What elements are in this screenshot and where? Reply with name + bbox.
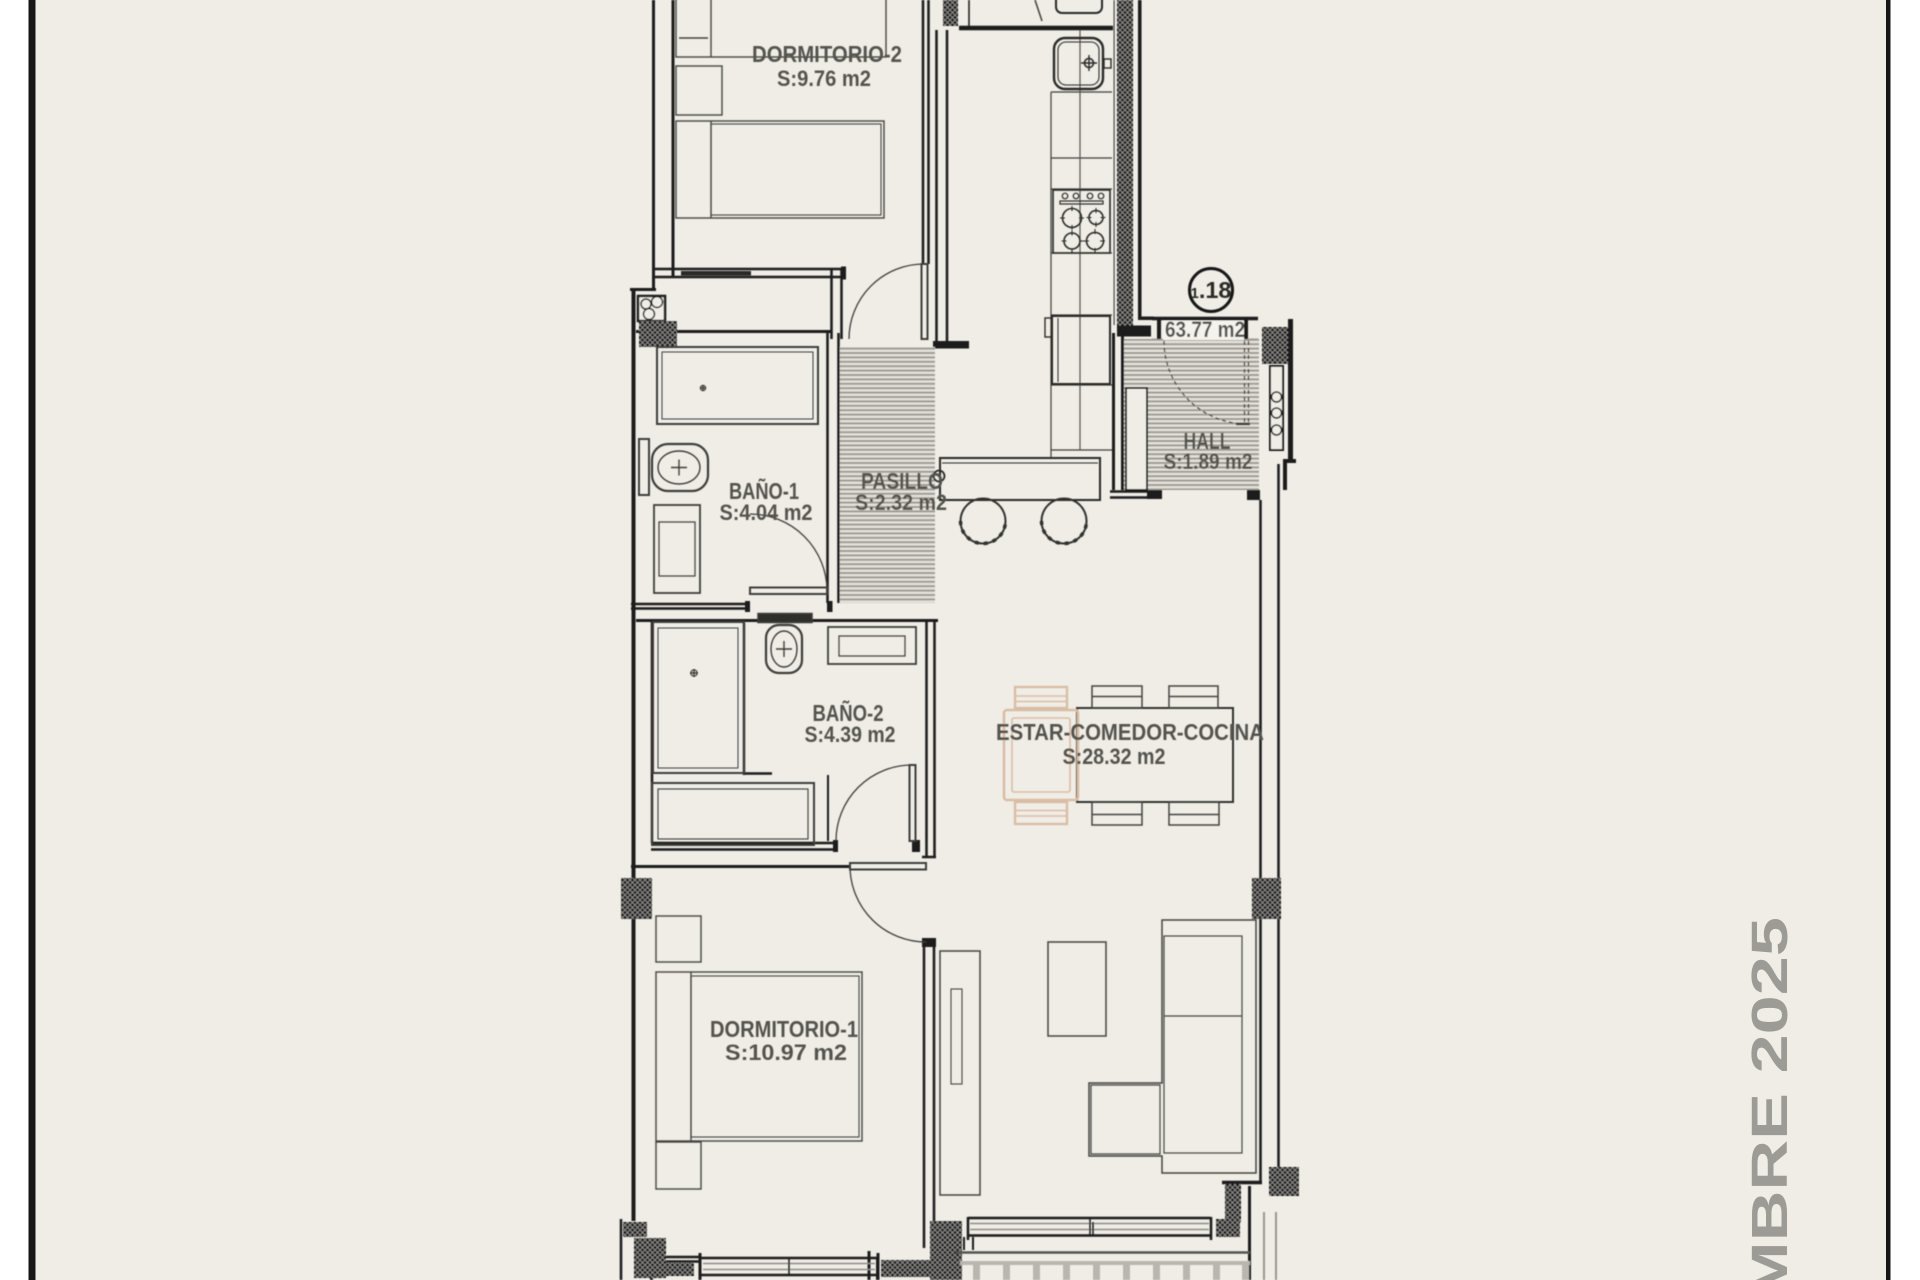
svg-text:ESTAR-COMEDOR-COCINA: ESTAR-COMEDOR-COCINA: [996, 719, 1264, 745]
svg-text:DORMITORIO-1: DORMITORIO-1: [710, 1016, 858, 1042]
svg-text:S:28.32 m2: S:28.32 m2: [1063, 744, 1166, 769]
svg-text:S:10.97 m2: S:10.97 m2: [725, 1040, 847, 1065]
svg-text:63.77 m2: 63.77 m2: [1165, 317, 1245, 342]
svg-text:S:4.04 m2: S:4.04 m2: [720, 500, 813, 525]
svg-text:DORMITORIO-2: DORMITORIO-2: [752, 41, 902, 67]
svg-text:MBRE 2025: MBRE 2025: [1741, 917, 1798, 1280]
svg-text:S:4.39 m2: S:4.39 m2: [805, 722, 896, 747]
svg-text:S:2.32 m2: S:2.32 m2: [855, 490, 947, 515]
svg-text:S:1.89 m2: S:1.89 m2: [1164, 449, 1253, 474]
svg-text:S:9.76 m2: S:9.76 m2: [777, 66, 871, 91]
